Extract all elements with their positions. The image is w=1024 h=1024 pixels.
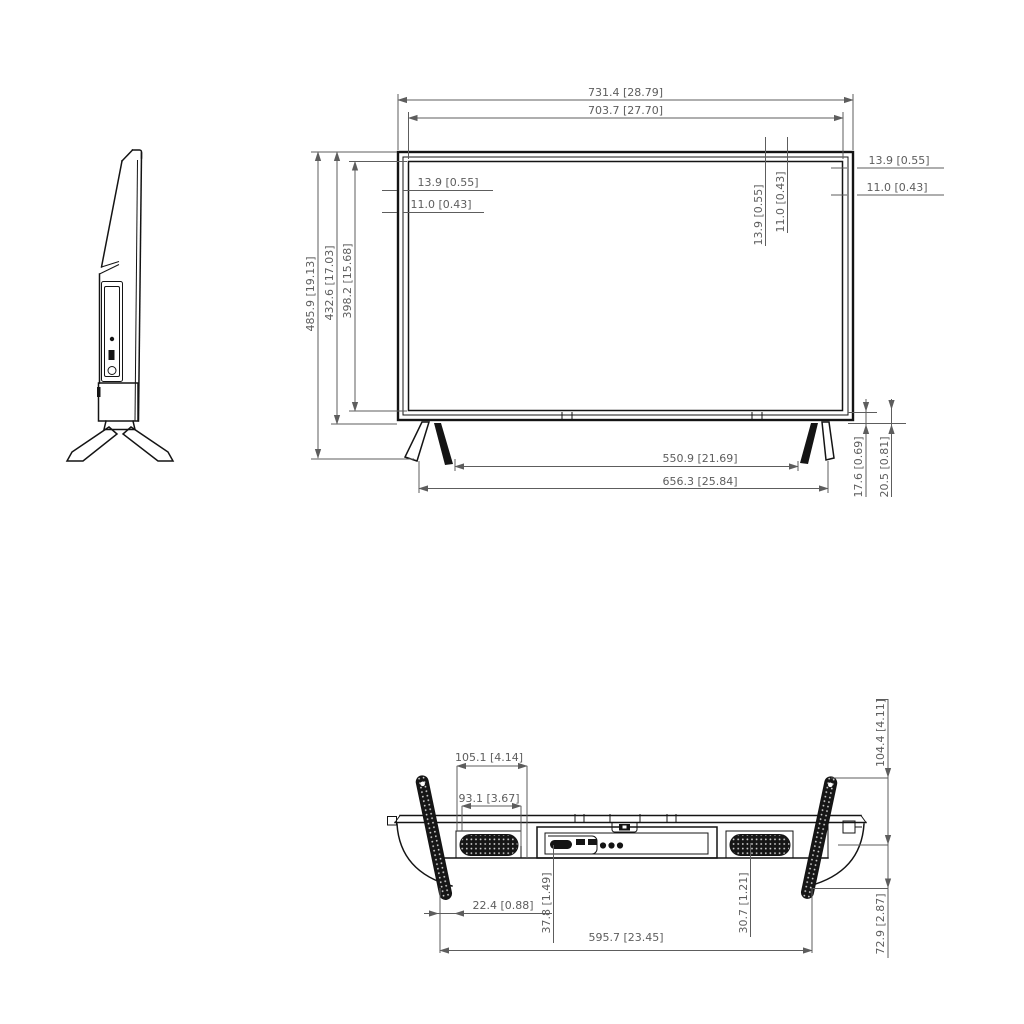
center-tab-notch [623, 826, 627, 829]
usb-port-icon [109, 350, 115, 360]
side-front-edge [139, 153, 142, 421]
bottom-left-hook [388, 817, 397, 826]
dim-label-height-screen: 398.2 [15.68] [341, 243, 354, 318]
dim-label-width-total: 731.4 [28.79] [588, 86, 663, 99]
dim-label-bezel-right-a: 13.9 [0.55] [868, 154, 929, 167]
front-right-foot-outer [822, 422, 834, 460]
side-lower-box [99, 383, 139, 421]
dim-label-foot-h-b: 20.5 [0.81] [878, 436, 891, 497]
dim-label-stand-depth: 72.9 [2.87] [874, 893, 887, 954]
side-back-edge [102, 161, 123, 267]
stand-leg-left [415, 775, 453, 901]
dim-label-feet-inner-span: 550.9 [21.69] [662, 452, 737, 465]
stand-leg-right [800, 776, 838, 900]
front-left-foot-inner [434, 423, 453, 465]
dim-label-bezel-left-a: 13.9 [0.55] [417, 176, 478, 189]
dim-label-offset-c: 30.7 [1.21] [737, 872, 750, 933]
dim-label-depth-with-stand: 104.4 [4.11] [874, 699, 887, 767]
side-stand-leg-right [123, 427, 173, 461]
side-io-recess-inner [105, 287, 120, 377]
dim-label-bezel-right-b: 11.0 [0.43] [866, 181, 927, 194]
power-led-icon [110, 337, 114, 341]
drawing-page: 731.4 [28.79] 703.7 [27.70] 485.9 [19.13… [0, 0, 1024, 1024]
dimension-drawing: 731.4 [28.79] 703.7 [27.70] 485.9 [19.13… [0, 0, 1024, 1024]
dim-label-width-screen: 703.7 [27.70] [588, 104, 663, 117]
side-top-cap [133, 150, 142, 158]
front-left-foot-outer [405, 422, 429, 461]
speaker-grille-left-icon [460, 835, 518, 856]
dim-label-foot-h-a: 17.6 [0.69] [852, 436, 865, 497]
speaker-grille-right-icon [730, 835, 790, 856]
dim-label-bezel-mid-b: 11.0 [0.43] [774, 171, 787, 232]
dim-label-bezel-mid-a: 13.9 [0.55] [752, 184, 765, 245]
av-port-2-icon [608, 842, 614, 848]
dim-label-height-total: 485.9 [19.13] [304, 256, 317, 331]
side-stand-leg-left [67, 427, 117, 461]
dim-label-bezel-left-b: 11.0 [0.43] [410, 198, 471, 211]
side-view [67, 150, 173, 461]
jack-port-icon [108, 367, 116, 375]
av-port-3-icon [617, 842, 623, 848]
hdmi-port-2-icon [588, 839, 597, 845]
side-top-edge [122, 150, 133, 161]
dim-label-speaker-a: 105.1 [4.14] [455, 751, 523, 764]
dim-label-offset-a: 22.4 [0.88] [472, 899, 533, 912]
side-front-inner-edge [135, 160, 138, 421]
dim-label-speaker-b: 93.1 [3.67] [458, 792, 519, 805]
dim-label-offset-b: 37.8 [1.49] [540, 872, 553, 933]
dim-label-feet-span: 595.7 [23.45] [588, 931, 663, 944]
dim-label-feet-outer-span: 656.3 [25.84] [662, 475, 737, 488]
av-port-icon [600, 842, 606, 848]
front-bottom-slots [562, 412, 762, 420]
front-right-foot-inner [800, 423, 818, 464]
dim-label-height-body: 432.6 [17.03] [323, 245, 336, 320]
hdmi-port-icon [576, 839, 585, 845]
side-latch [97, 387, 101, 397]
